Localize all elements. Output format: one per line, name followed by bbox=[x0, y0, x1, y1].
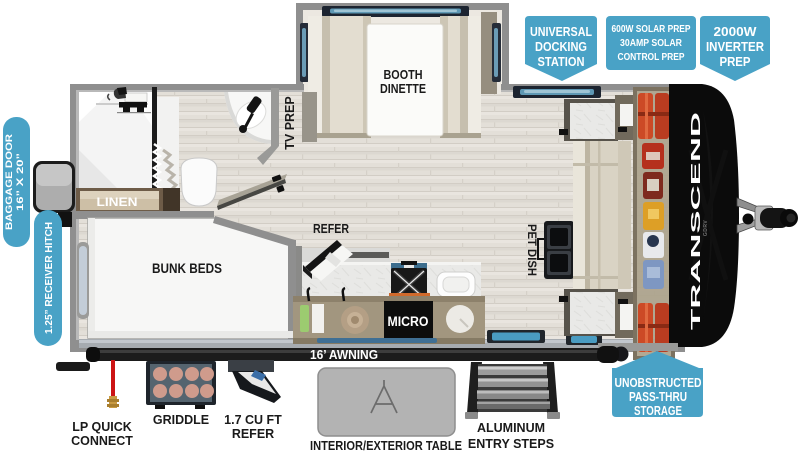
svg-text:16’ AWNING: 16’ AWNING bbox=[310, 348, 378, 362]
svg-text:STATION: STATION bbox=[538, 54, 585, 69]
svg-text:600W SOLAR PREP: 600W SOLAR PREP bbox=[612, 23, 691, 35]
svg-text:LINEN: LINEN bbox=[97, 195, 138, 209]
svg-text:GDRV: GDRV bbox=[703, 220, 709, 237]
svg-text:REFER: REFER bbox=[232, 427, 274, 441]
svg-text:2000W: 2000W bbox=[714, 24, 758, 39]
svg-text:CONNECT: CONNECT bbox=[71, 434, 133, 448]
svg-text:BOOTH: BOOTH bbox=[384, 67, 423, 82]
svg-text:GRIDDLE: GRIDDLE bbox=[153, 413, 209, 427]
svg-text:BAGGAGE DOOR: BAGGAGE DOOR bbox=[4, 134, 15, 230]
svg-text:1.25” RECEIVER HITCH: 1.25” RECEIVER HITCH bbox=[43, 222, 55, 334]
svg-text:DINETTE: DINETTE bbox=[380, 81, 426, 96]
svg-text:PASS-THRU: PASS-THRU bbox=[629, 390, 687, 404]
svg-text:30AMP SOLAR: 30AMP SOLAR bbox=[620, 37, 682, 49]
svg-text:CONTROL PREP: CONTROL PREP bbox=[618, 51, 685, 63]
svg-text:PREP: PREP bbox=[720, 54, 751, 69]
svg-text:UNOBSTRUCTED: UNOBSTRUCTED bbox=[615, 376, 702, 390]
svg-text:16” X 20”: 16” X 20” bbox=[15, 153, 26, 211]
svg-text:STORAGE: STORAGE bbox=[634, 404, 682, 418]
svg-text:1.7 CU FT: 1.7 CU FT bbox=[224, 413, 282, 427]
svg-text:MICRO: MICRO bbox=[388, 314, 429, 329]
svg-text:INVERTER: INVERTER bbox=[706, 39, 765, 54]
svg-text:REFER: REFER bbox=[313, 222, 349, 236]
svg-text:UNIVERSAL: UNIVERSAL bbox=[530, 24, 592, 39]
svg-text:TRANSCEND: TRANSCEND bbox=[689, 112, 703, 330]
svg-text:PET DISH: PET DISH bbox=[525, 224, 539, 276]
svg-text:INTERIOR/EXTERIOR TABLE: INTERIOR/EXTERIOR TABLE bbox=[310, 439, 462, 453]
svg-text:DOCKING: DOCKING bbox=[535, 39, 587, 54]
svg-text:BUNK BEDS: BUNK BEDS bbox=[152, 260, 222, 276]
svg-text:ALUMINUM: ALUMINUM bbox=[477, 421, 545, 435]
svg-text:ENTRY STEPS: ENTRY STEPS bbox=[468, 437, 554, 451]
svg-text:TV PREP: TV PREP bbox=[283, 96, 297, 150]
svg-text:LP QUICK: LP QUICK bbox=[72, 420, 132, 434]
